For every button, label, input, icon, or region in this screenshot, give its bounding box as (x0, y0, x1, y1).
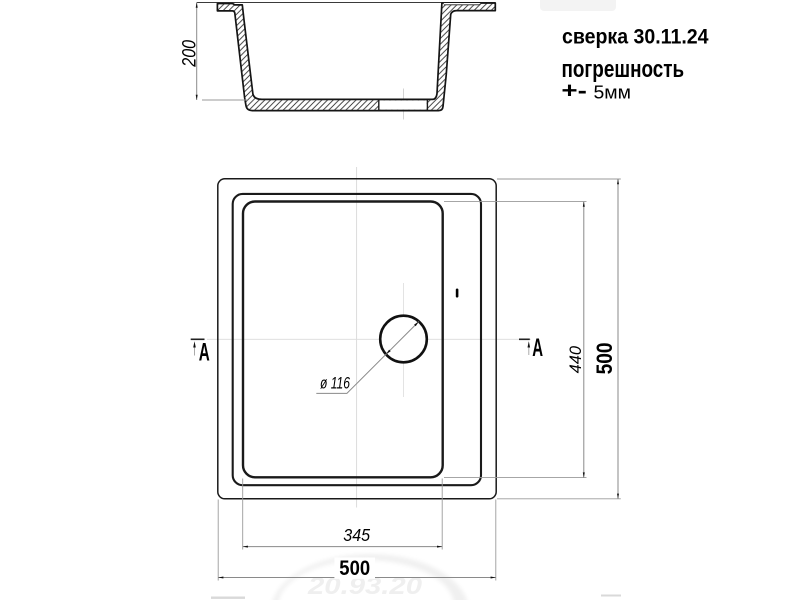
svg-text:440: 440 (566, 345, 585, 373)
svg-text:сверка 30.11.24: сверка 30.11.24 (562, 26, 709, 49)
svg-text:A: A (532, 334, 543, 362)
svg-text:345: 345 (343, 525, 370, 545)
svg-text:ø 116: ø 116 (320, 375, 351, 393)
svg-text:A: A (199, 339, 210, 367)
svg-text:500: 500 (592, 342, 617, 374)
svg-text:200: 200 (180, 40, 201, 68)
svg-text:5мм: 5мм (594, 81, 632, 102)
svg-text:500: 500 (339, 556, 370, 580)
svg-text:+-: +- (561, 78, 587, 103)
